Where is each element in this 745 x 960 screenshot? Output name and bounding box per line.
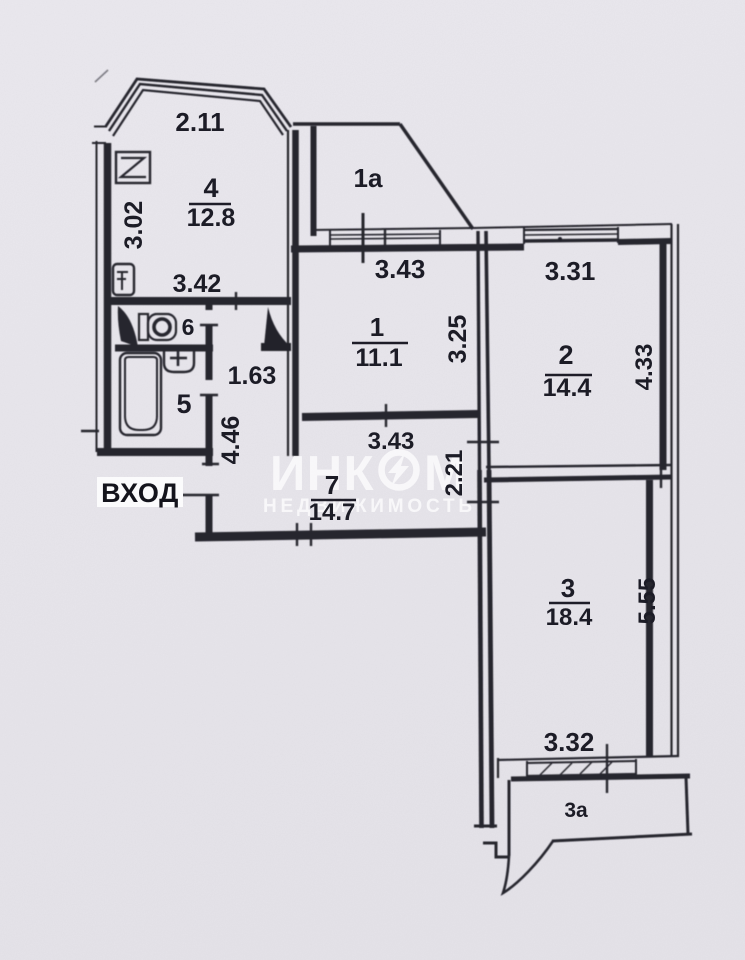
svg-text:НЕДВИЖИМОСТЬ: НЕДВИЖИМОСТЬ	[263, 496, 476, 517]
svg-text:1.63: 1.63	[228, 362, 277, 390]
svg-text:14.7: 14.7	[309, 499, 356, 526]
svg-text:ВХОД: ВХОД	[101, 478, 179, 508]
svg-text:3.42: 3.42	[173, 270, 222, 298]
svg-text:4: 4	[203, 173, 218, 203]
svg-text:11.1: 11.1	[355, 344, 402, 372]
svg-text:7: 7	[325, 470, 339, 500]
svg-text:2.21: 2.21	[441, 450, 468, 497]
svg-text:2: 2	[558, 340, 573, 370]
svg-text:3.31: 3.31	[545, 256, 596, 286]
svg-text:12.8: 12.8	[187, 204, 236, 232]
svg-text:1а: 1а	[354, 163, 383, 193]
svg-text:5.55: 5.55	[634, 578, 661, 625]
svg-text:3а: 3а	[564, 799, 588, 822]
svg-text:1: 1	[370, 312, 384, 342]
svg-text:3: 3	[561, 573, 575, 603]
svg-text:6: 6	[182, 314, 195, 340]
svg-text:14.4: 14.4	[543, 374, 592, 402]
svg-text:18.4: 18.4	[546, 604, 593, 631]
svg-text:3.43: 3.43	[375, 254, 426, 284]
svg-text:5: 5	[176, 389, 191, 419]
svg-text:3.43: 3.43	[368, 428, 415, 455]
svg-text:2.11: 2.11	[175, 107, 224, 137]
svg-text:3.25: 3.25	[444, 315, 472, 364]
svg-text:3.02: 3.02	[120, 201, 148, 250]
svg-text:ИНК: ИНК	[270, 447, 375, 501]
svg-text:4.33: 4.33	[631, 344, 658, 391]
svg-text:4.46: 4.46	[217, 416, 245, 465]
svg-text:3.32: 3.32	[544, 727, 595, 757]
